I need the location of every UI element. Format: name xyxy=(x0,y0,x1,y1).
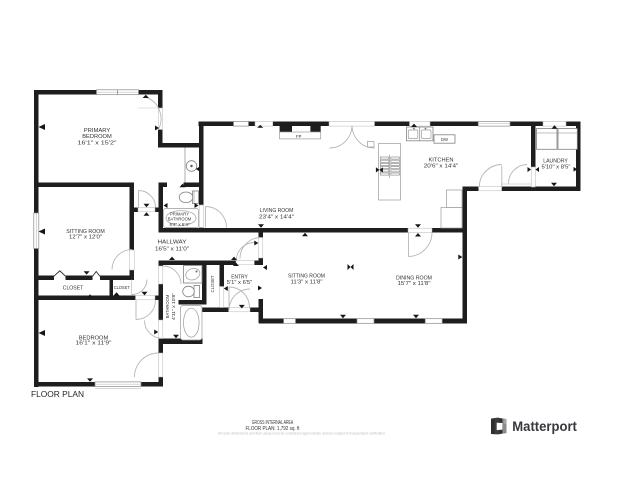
svg-text:FP: FP xyxy=(296,134,302,139)
svg-text:16'1" x 11'9": 16'1" x 11'9" xyxy=(76,340,112,346)
svg-text:BATHROOM: BATHROOM xyxy=(165,295,171,319)
svg-text:20'6" x 14'4": 20'6" x 14'4" xyxy=(424,164,459,170)
svg-text:5'10" x 8'5": 5'10" x 8'5" xyxy=(542,164,571,170)
svg-text:FLOOR PLAN: FLOOR PLAN xyxy=(31,389,84,399)
svg-text:CLOSET: CLOSET xyxy=(114,285,130,290)
svg-text:15'7" x 11'8": 15'7" x 11'8" xyxy=(398,281,431,287)
svg-text:4'11" x 10'8": 4'11" x 10'8" xyxy=(171,293,177,320)
svg-text:5'1" x 6'5": 5'1" x 6'5" xyxy=(227,280,253,286)
svg-text:DW: DW xyxy=(441,137,448,142)
svg-text:PRIMARY: PRIMARY xyxy=(170,211,190,216)
svg-text:11'3" x 11'8": 11'3" x 11'8" xyxy=(291,279,323,285)
svg-text:5'3" x 6'4": 5'3" x 6'4" xyxy=(170,222,190,227)
svg-text:16'5" x 11'0": 16'5" x 11'0" xyxy=(155,247,189,253)
svg-text:23'4" x 14'4": 23'4" x 14'4" xyxy=(259,215,294,221)
svg-text:LIVING ROOM: LIVING ROOM xyxy=(260,208,294,214)
svg-text:BATHROOM: BATHROOM xyxy=(168,217,192,222)
svg-text:BEDROOM: BEDROOM xyxy=(82,134,112,140)
svg-text:KITCHEN: KITCHEN xyxy=(429,157,454,163)
svg-text:PRIMARY: PRIMARY xyxy=(84,128,111,134)
svg-text:HALLWAY: HALLWAY xyxy=(158,240,187,246)
svg-text:Matterport: Matterport xyxy=(512,419,577,434)
svg-text:CLOSET: CLOSET xyxy=(210,275,216,292)
svg-text:All room dimensions and floor: All room dimensions and floor areas must… xyxy=(218,432,385,436)
svg-text:CLOSET: CLOSET xyxy=(63,286,84,292)
svg-text:16'1" x 15'2": 16'1" x 15'2" xyxy=(78,140,117,146)
svg-text:LAUNDRY: LAUNDRY xyxy=(543,158,568,164)
svg-text:12'7" x 12'0": 12'7" x 12'0" xyxy=(69,234,102,240)
